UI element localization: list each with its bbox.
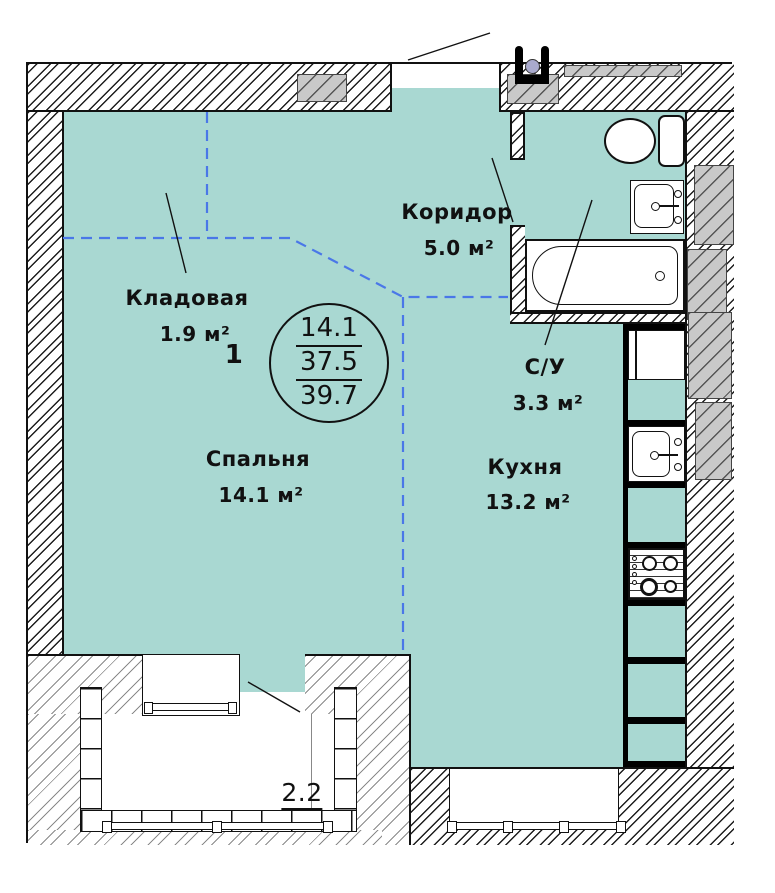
kitchen-sink-icon (628, 426, 685, 482)
kitchen-cabinet-icon (628, 330, 685, 380)
window-mullion (559, 821, 569, 833)
window-mullion (212, 821, 222, 833)
balcony-door-block (142, 654, 240, 716)
toilet-tank-icon (658, 115, 685, 167)
balcony-area-label: 2.2 (281, 778, 322, 810)
room-label-kitchen: Кухня (488, 455, 563, 479)
toilet-icon (604, 118, 656, 164)
room-area-kitchen: 13.2 м² (486, 490, 571, 514)
entrance-door-icon (515, 46, 549, 88)
counter-bar-6 (623, 717, 685, 724)
room-label-bathroom: С/У (525, 355, 566, 379)
counter-bar-4 (623, 600, 685, 606)
bathtub-icon (525, 239, 685, 312)
window-mullion (102, 821, 112, 833)
window-mullion (503, 821, 513, 833)
room-area-bedroom: 14.1 м² (219, 483, 304, 507)
stove-knob-3 (632, 572, 637, 577)
shaft-right-2 (687, 249, 727, 320)
window-mullion (616, 821, 626, 833)
wall-bath-stub (510, 112, 525, 160)
shaft-top (297, 74, 347, 102)
stove-burner-3 (640, 578, 658, 596)
door-leg-left (515, 46, 523, 78)
counter-bar-7 (623, 761, 685, 767)
area-stamp: 14.1 37.5 39.7 (269, 303, 389, 423)
stamp-heated-area: 37.5 (296, 347, 362, 381)
room-label-corridor: Коридор (401, 200, 512, 224)
floor-kitchen-lower (405, 654, 685, 767)
lintel-top (564, 65, 682, 77)
room-label-bedroom: Спальня (206, 447, 310, 471)
room-area-corridor: 5.0 м² (424, 236, 495, 260)
window-mullion (144, 702, 153, 714)
bath-sink-icon (630, 180, 684, 234)
stove-icon (628, 548, 685, 600)
counter-bar-2 (623, 482, 685, 488)
stove-burner-1 (642, 556, 657, 571)
door-knob-icon (525, 59, 540, 74)
kitchen-sink-spout (658, 454, 678, 456)
leader-entrance (408, 33, 490, 60)
bath-sink-handle-2 (674, 216, 682, 224)
floorplan-page: { "plan": { "unit_number": "1", "rooms":… (0, 0, 775, 893)
bath-sink-spout (659, 205, 679, 207)
unit-number: 1 (225, 340, 244, 370)
entrance-opening (392, 64, 499, 88)
kitchen-bay (449, 769, 619, 830)
stove-burner-2 (663, 556, 678, 571)
balcony-window-icon (104, 822, 332, 830)
shaft-right-1 (694, 165, 734, 245)
floor-entry-threshold (392, 88, 499, 112)
balcony-door-window-icon (146, 703, 235, 711)
door-base (515, 75, 549, 84)
stove-knob-2 (632, 564, 637, 569)
stove-knob-1 (632, 556, 637, 561)
wall-bath-left (510, 225, 525, 324)
room-area-storage: 1.9 м² (160, 322, 231, 346)
floorplan: 14.1 37.5 39.7 Кладовая 1.9 м² 1 Коридор… (26, 62, 732, 843)
kitchen-sink-handle-2 (674, 463, 682, 471)
kitchen-window-icon (449, 822, 625, 830)
wall-left (28, 112, 64, 654)
stove-burner-4 (664, 580, 677, 593)
floor-balcony-doorway (240, 654, 305, 692)
door-leg-right (541, 46, 549, 78)
kitchen-sink-handle-1 (674, 438, 682, 446)
room-label-storage: Кладовая (125, 286, 248, 310)
room-area-bathroom: 3.3 м² (513, 391, 584, 415)
stamp-total-area: 39.7 (296, 381, 362, 413)
window-mullion (447, 821, 457, 833)
counter-bar-5 (623, 657, 685, 664)
bath-sink-handle-1 (674, 190, 682, 198)
window-mullion (323, 821, 333, 833)
wall-bath-bottom (510, 312, 685, 324)
wall-balcony-left-lower (28, 714, 82, 845)
bathtub-drain-icon (655, 271, 665, 281)
cabinet-line (635, 331, 637, 379)
window-mullion (228, 702, 237, 714)
shaft-right-3 (688, 312, 732, 399)
stamp-living-area: 14.1 (296, 313, 362, 347)
stove-knob-4 (632, 580, 637, 585)
shaft-right-4 (695, 402, 732, 480)
